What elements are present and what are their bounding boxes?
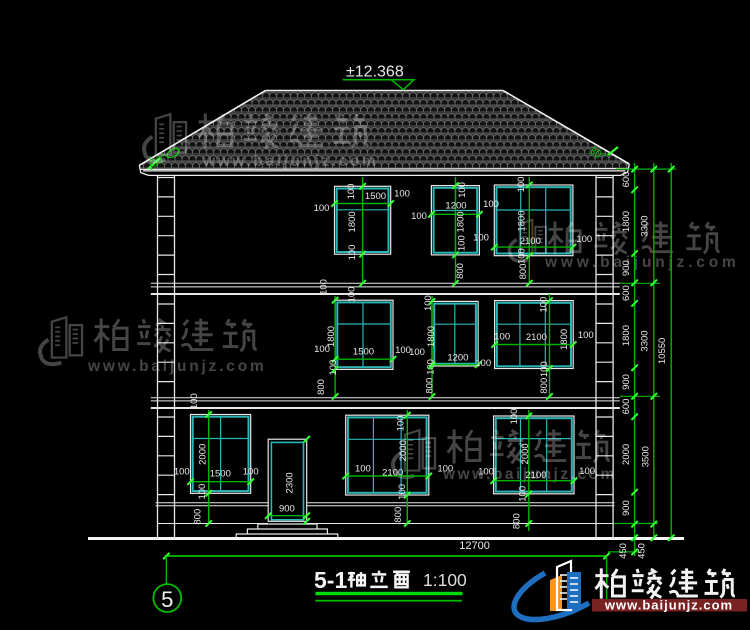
- svg-text:100: 100: [473, 233, 489, 244]
- svg-text:10550: 10550: [657, 338, 668, 364]
- svg-text:12700: 12700: [459, 540, 490, 552]
- svg-text:1:100: 1:100: [423, 570, 467, 590]
- svg-text:3300: 3300: [640, 330, 651, 351]
- svg-text:1800: 1800: [347, 211, 358, 232]
- svg-text:±12.368: ±12.368: [346, 64, 404, 81]
- svg-text:2100: 2100: [526, 332, 547, 343]
- svg-text:www.baijunjz.com: www.baijunjz.com: [544, 254, 740, 271]
- svg-text:800: 800: [393, 507, 404, 523]
- svg-text:1800: 1800: [621, 211, 632, 232]
- svg-text:100: 100: [319, 279, 330, 295]
- svg-text:100: 100: [478, 467, 494, 478]
- svg-text:900: 900: [279, 504, 295, 515]
- svg-text:100: 100: [517, 248, 528, 264]
- svg-text:1500: 1500: [365, 191, 386, 202]
- svg-text:450: 450: [618, 543, 629, 559]
- svg-text:100: 100: [394, 189, 410, 200]
- svg-text:100: 100: [475, 358, 491, 369]
- svg-text:1800: 1800: [426, 326, 437, 347]
- svg-text:5: 5: [161, 587, 173, 612]
- svg-text:1800: 1800: [559, 329, 570, 350]
- svg-text:100: 100: [457, 182, 468, 198]
- svg-text:900: 900: [621, 260, 632, 276]
- svg-text:1200: 1200: [445, 200, 466, 211]
- svg-text:800: 800: [425, 378, 436, 394]
- svg-text:600: 600: [621, 285, 632, 301]
- svg-text:100: 100: [243, 466, 259, 477]
- svg-text:2300: 2300: [284, 472, 295, 493]
- svg-text:100: 100: [347, 245, 358, 261]
- svg-text:2100: 2100: [525, 470, 546, 481]
- svg-text:100: 100: [197, 484, 208, 500]
- svg-text:100: 100: [174, 466, 190, 477]
- svg-text:800: 800: [512, 513, 523, 529]
- svg-text:800: 800: [316, 379, 327, 395]
- svg-text:100: 100: [437, 464, 453, 475]
- svg-text:100: 100: [517, 486, 528, 502]
- svg-text:100: 100: [539, 297, 550, 313]
- svg-text:1800: 1800: [621, 325, 632, 346]
- svg-text:www.baijunjz.com: www.baijunjz.com: [604, 597, 733, 612]
- svg-text:800: 800: [193, 509, 204, 525]
- svg-text:100: 100: [409, 347, 425, 358]
- svg-text:2000: 2000: [197, 444, 208, 465]
- svg-text:100: 100: [578, 330, 594, 341]
- svg-text:800: 800: [518, 264, 529, 280]
- svg-text:800: 800: [455, 263, 466, 279]
- svg-text:2000: 2000: [621, 444, 632, 465]
- svg-text:1500: 1500: [210, 469, 231, 480]
- svg-text:100: 100: [483, 199, 499, 210]
- svg-text:100: 100: [576, 234, 592, 245]
- svg-text:1500: 1500: [353, 346, 374, 357]
- svg-text:2100: 2100: [382, 467, 403, 478]
- svg-text:100: 100: [314, 203, 330, 214]
- svg-text:3500: 3500: [641, 446, 652, 467]
- svg-text:900: 900: [621, 500, 632, 516]
- svg-text:450: 450: [637, 543, 648, 559]
- svg-text:3300: 3300: [640, 215, 651, 236]
- svg-text:100: 100: [314, 344, 330, 355]
- svg-text:www.baijunjz.com: www.baijunjz.com: [87, 358, 267, 375]
- svg-text:100: 100: [579, 466, 595, 477]
- svg-text:100: 100: [509, 409, 520, 425]
- svg-text:2000: 2000: [398, 440, 409, 461]
- svg-text:100: 100: [355, 464, 371, 475]
- svg-text:900: 900: [621, 374, 632, 390]
- svg-text:100: 100: [516, 177, 527, 193]
- svg-text:1200: 1200: [447, 352, 468, 363]
- svg-text:100: 100: [346, 184, 357, 200]
- svg-text:1800: 1800: [456, 211, 467, 232]
- svg-text:2000: 2000: [520, 443, 531, 464]
- svg-text:100: 100: [457, 235, 468, 251]
- svg-text:100: 100: [423, 295, 434, 311]
- svg-text:600: 600: [621, 399, 632, 415]
- svg-text:2100: 2100: [520, 236, 541, 247]
- svg-text:800: 800: [539, 378, 550, 394]
- svg-text:5-1: 5-1: [314, 567, 347, 593]
- svg-text:100: 100: [411, 211, 427, 222]
- svg-text:100: 100: [189, 393, 200, 409]
- svg-text:100: 100: [347, 287, 358, 303]
- svg-text:100: 100: [494, 331, 510, 342]
- svg-text:www.baijunjz.com: www.baijunjz.com: [202, 153, 378, 170]
- svg-text:600: 600: [621, 172, 632, 188]
- svg-text:1800: 1800: [517, 210, 528, 231]
